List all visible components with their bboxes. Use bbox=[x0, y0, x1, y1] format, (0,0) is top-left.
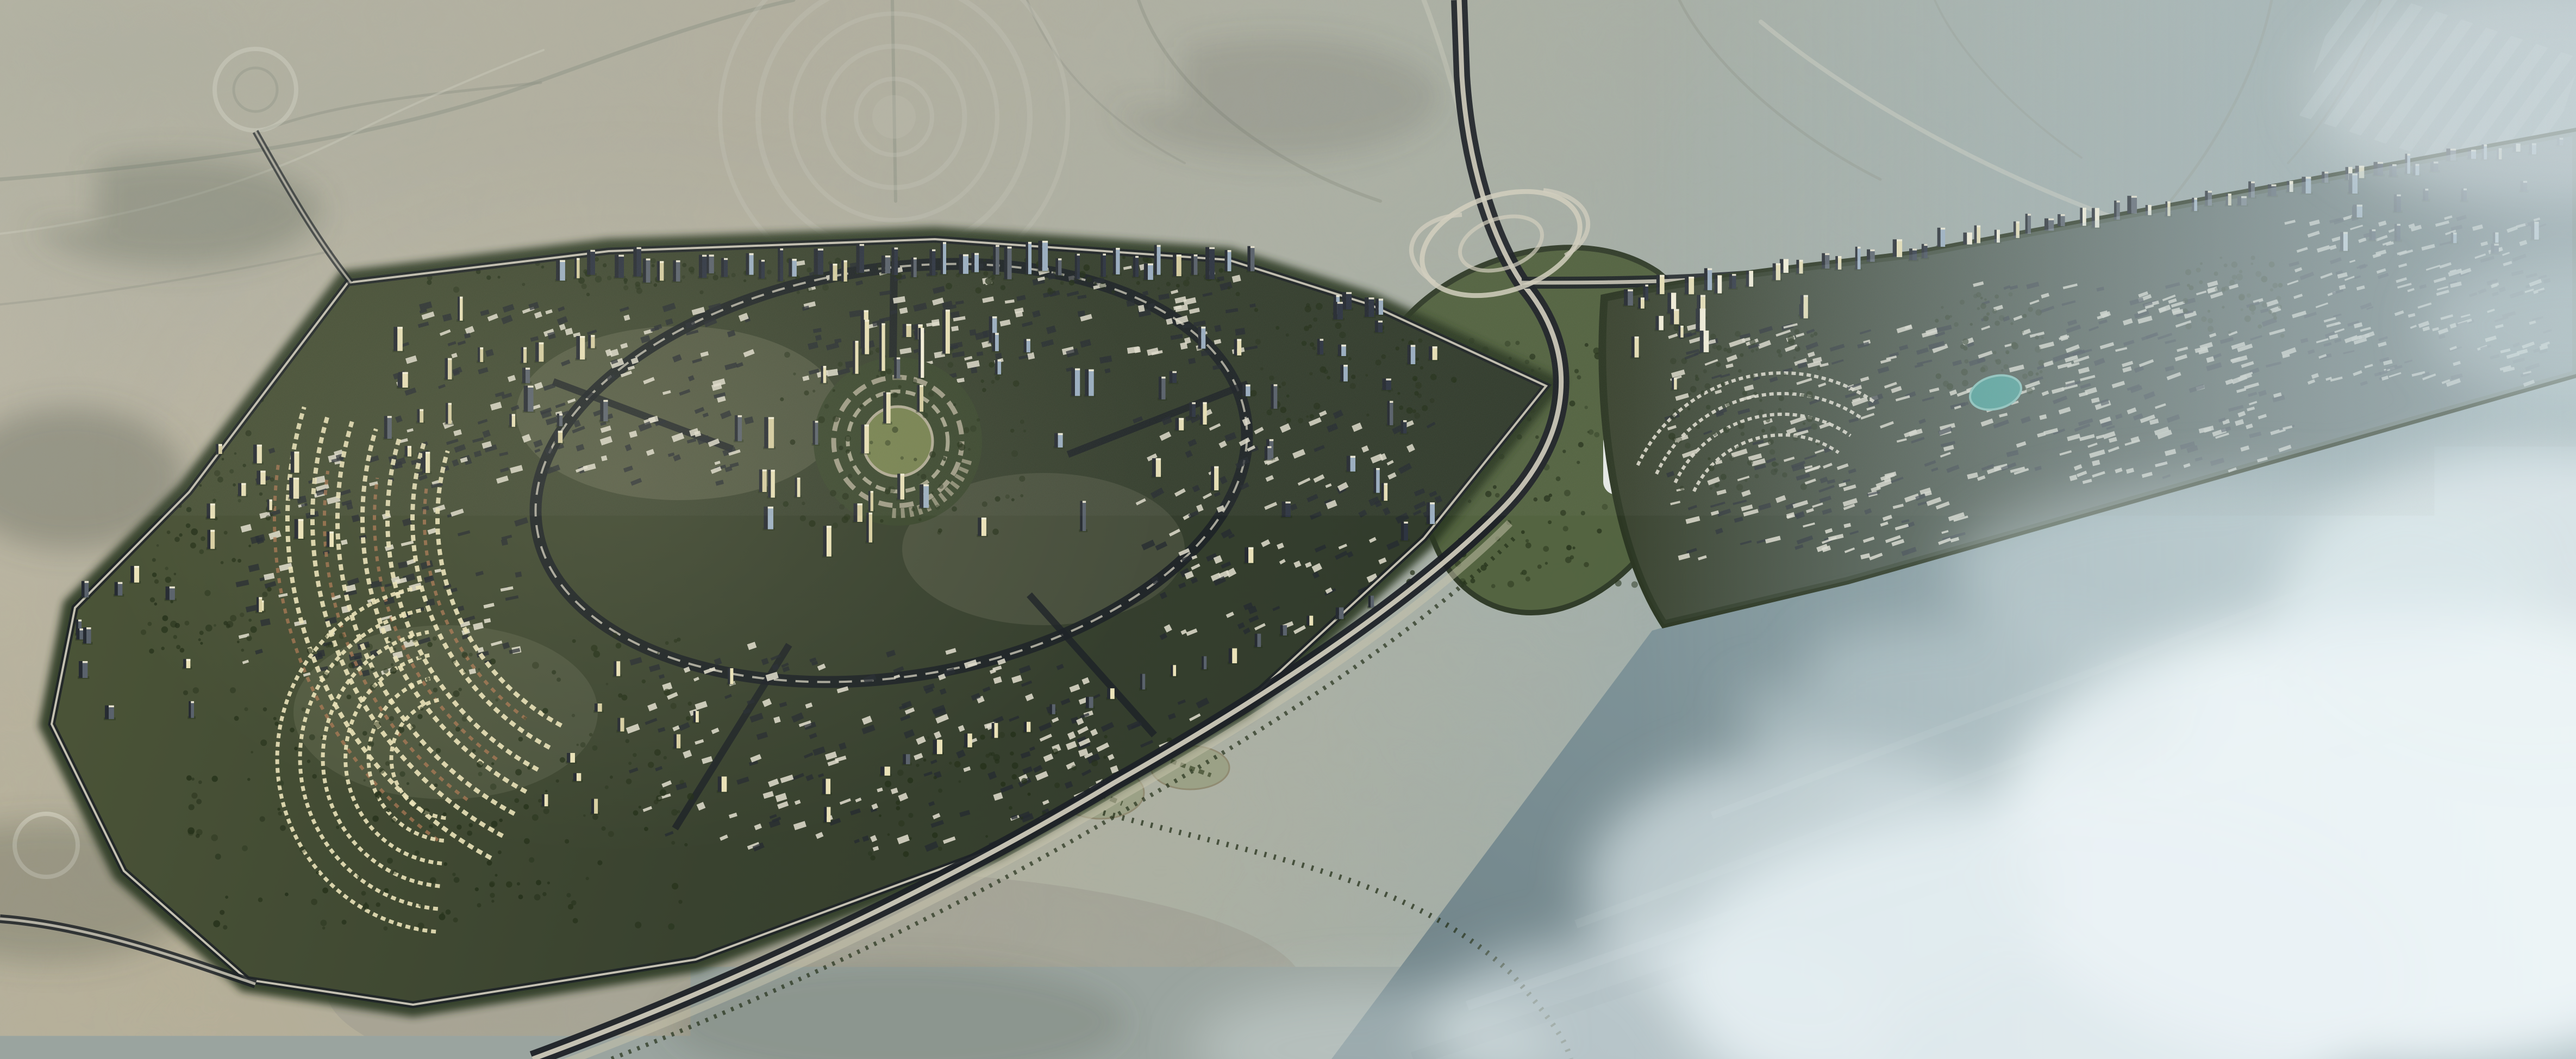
scene-canvas bbox=[0, 0, 2576, 1059]
aerial-masterplan-rendering bbox=[0, 0, 2576, 1059]
film-grain bbox=[0, 0, 2576, 1059]
